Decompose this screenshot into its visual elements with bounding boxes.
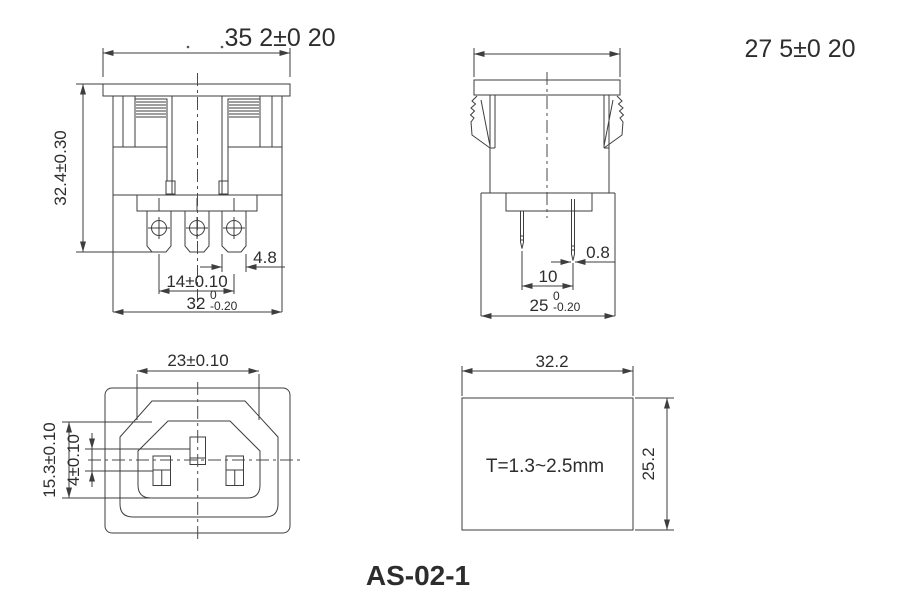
panel-cutout-drawing: 32.2 25.2 T=1.3~2.5mm — [462, 352, 674, 530]
front-height-dim: 32.4±0.30 — [51, 130, 70, 206]
engineering-drawing: 35 2±0 20 32.4±0.30 4.8 14±0.10 32 0 -0.… — [0, 0, 900, 605]
cutout-width-dim: 32.2 — [535, 352, 568, 371]
front-view-drawing: 35 2±0 20 32.4±0.30 4.8 14±0.10 32 0 -0.… — [51, 24, 336, 313]
side-view-drawing: 27 5±0 20 0.8 10 25 0 -0.20 — [471, 35, 856, 316]
front-body-width-dim: 32 — [187, 294, 206, 313]
cutout-height-dim: 25.2 — [639, 447, 658, 480]
front-terminal-spacing-dim: 14±0.10 — [166, 272, 227, 291]
front-flange-width-dim: 35 2±0 20 — [224, 24, 335, 52]
side-body-width-dim: 25 — [530, 296, 549, 315]
decimal-dot-artifact — [221, 46, 224, 49]
side-pin-spacing-dim: 10 — [539, 267, 558, 286]
face-opening-width-dim: 23±0.10 — [167, 351, 228, 370]
face-view-drawing: 23±0.10 15.3±0.10 4±0.10 — [40, 351, 302, 540]
drawing-sheet: 35 2±0 20 32.4±0.30 4.8 14±0.10 32 0 -0.… — [0, 0, 900, 605]
front-body-width-tol-lower: -0.20 — [210, 299, 238, 313]
side-flange-width-dim: 27 5±0 20 — [744, 35, 855, 63]
front-terminal-width-dim: 4.8 — [253, 248, 277, 267]
panel-thickness-note: T=1.3~2.5mm — [486, 456, 604, 477]
side-pin-thickness-dim: 0.8 — [586, 243, 610, 262]
face-pin-offset-dim: 4±0.10 — [64, 434, 83, 486]
face-opening-height-dim: 15.3±0.10 — [40, 422, 59, 498]
side-body-width-tol-lower: -0.20 — [553, 300, 581, 314]
drawing-title: AS-02-1 — [366, 560, 470, 591]
decimal-dot-artifact — [187, 46, 190, 49]
